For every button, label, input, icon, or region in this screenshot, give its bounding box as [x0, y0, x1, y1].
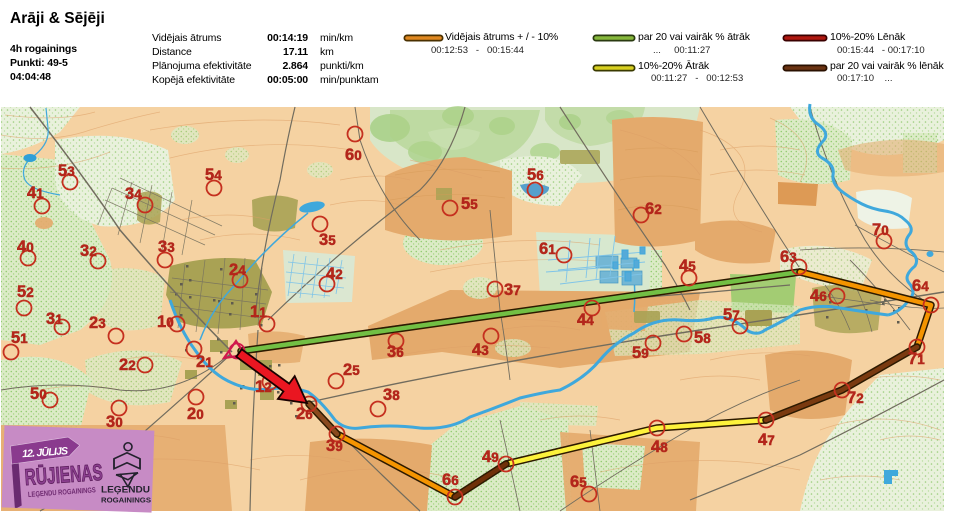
svg-text:44: 44	[577, 311, 594, 329]
svg-text:50: 50	[30, 385, 47, 403]
svg-text:43: 43	[472, 341, 489, 359]
svg-text:45: 45	[679, 257, 696, 275]
svg-text:47: 47	[758, 431, 775, 449]
svg-text:36: 36	[387, 343, 404, 361]
svg-text:34: 34	[125, 185, 142, 203]
svg-text:56: 56	[527, 166, 544, 184]
svg-text:26: 26	[296, 405, 313, 423]
svg-text:35: 35	[319, 231, 336, 249]
svg-text:62: 62	[645, 200, 662, 218]
svg-text:ROGAININGS: ROGAININGS	[101, 496, 151, 505]
svg-text:LEĢENDU: LEĢENDU	[101, 485, 150, 496]
svg-text:10: 10	[157, 313, 174, 331]
svg-text:42: 42	[326, 265, 343, 283]
svg-text:33: 33	[158, 238, 175, 256]
svg-text:38: 38	[383, 386, 400, 404]
svg-text:46: 46	[810, 287, 827, 305]
svg-text:12. JŪLIJS: 12. JŪLIJS	[22, 445, 69, 460]
svg-text:41: 41	[27, 184, 44, 202]
svg-text:66: 66	[442, 471, 459, 489]
svg-text:23: 23	[89, 314, 106, 332]
svg-text:71: 71	[908, 350, 925, 368]
svg-text:21: 21	[196, 353, 213, 371]
svg-text:39: 39	[326, 437, 343, 455]
svg-text:57: 57	[723, 306, 740, 324]
svg-text:37: 37	[504, 281, 521, 299]
svg-text:64: 64	[912, 277, 929, 295]
svg-text:63: 63	[780, 248, 797, 266]
svg-text:20: 20	[187, 405, 204, 423]
svg-text:11: 11	[250, 303, 267, 321]
svg-text:55: 55	[461, 195, 478, 213]
svg-text:60: 60	[345, 146, 362, 164]
svg-text:48: 48	[651, 438, 668, 456]
svg-text:53: 53	[58, 162, 75, 180]
svg-text:72: 72	[847, 389, 864, 407]
svg-text:24: 24	[229, 261, 246, 279]
svg-text:54: 54	[205, 166, 222, 184]
svg-text:40: 40	[17, 238, 34, 256]
svg-text:61: 61	[539, 240, 556, 258]
svg-text:70: 70	[872, 221, 889, 239]
svg-text:22: 22	[119, 356, 136, 374]
svg-text:58: 58	[694, 329, 711, 347]
svg-text:32: 32	[80, 242, 97, 260]
svg-text:49: 49	[482, 448, 499, 466]
svg-text:51: 51	[11, 329, 28, 347]
svg-text:52: 52	[17, 283, 34, 301]
svg-text:59: 59	[632, 344, 649, 362]
svg-text:65: 65	[570, 473, 587, 491]
svg-text:25: 25	[343, 361, 360, 379]
svg-text:31: 31	[46, 310, 63, 328]
